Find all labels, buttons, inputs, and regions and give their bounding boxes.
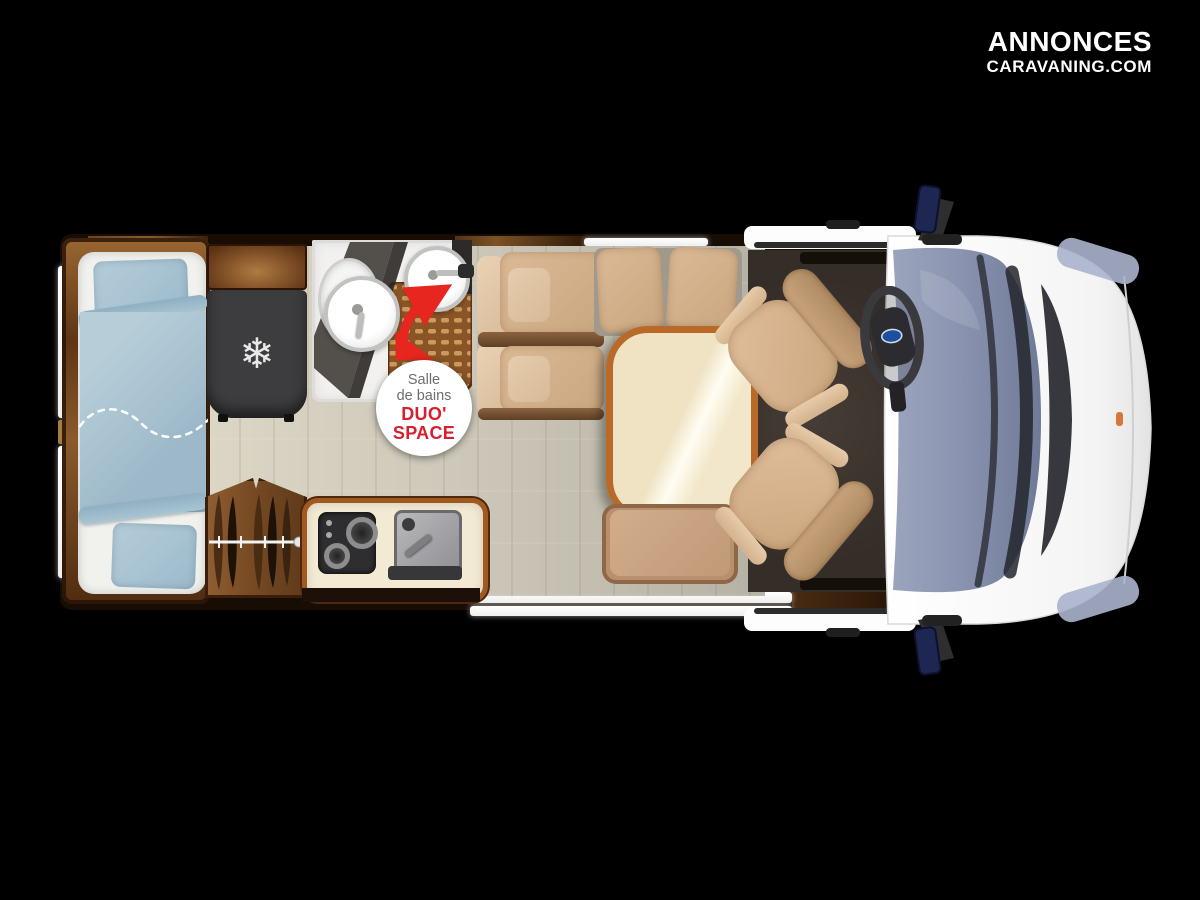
fridge-foot-right [284,414,294,422]
kitchen-shadow-strip [302,588,480,602]
kitchen-sink-base [388,566,462,580]
fridge-foot-left [218,414,228,422]
overhead-cabinet [207,244,307,290]
fridge: ❄ [207,290,307,418]
sofa-seat-1-inset [508,268,550,322]
steering-wheel [860,286,932,422]
floorplan-canvas: ❄ Salle de bains [0,0,1200,900]
wall-tap-block [458,264,474,278]
duvet-fold-dashed-line [78,398,208,454]
sofa-seat-2-inset [508,356,550,402]
sofa-divider [478,332,604,347]
stove-burner-small [324,543,350,569]
brand-logo-line2: CARAVANING.COM [987,58,1152,75]
stove-burner-large [346,517,378,549]
badge-accent-line1: DUO' [401,405,446,424]
swivel-arrow-icon [392,284,456,360]
badge-label-line1: Salle [408,373,440,389]
badge-label-line2: de bains [397,389,452,405]
sofa-bottom-cap [478,408,604,420]
kitchen-sink-drain [402,518,415,531]
snowflake-icon: ❄ [239,333,274,375]
side-marker-light [1116,412,1123,426]
wardrobe-hangers [207,486,305,596]
brand-logo-line1: ANNONCES [987,28,1152,56]
bench-backrest-left [596,246,664,333]
stove-knob-1 [326,520,332,526]
window-top-lounge [584,238,708,246]
side-mirror-top [914,185,962,245]
badge-accent-line2: SPACE [393,424,455,443]
van-front [740,180,1160,680]
bed-pillow-foot [111,523,197,590]
stove-knob-2 [326,532,332,538]
side-mirror-bottom [914,615,962,675]
brand-logo: ANNONCES CARAVANING.COM [987,28,1152,75]
bathroom-badge: Salle de bains DUO' SPACE [376,360,472,456]
